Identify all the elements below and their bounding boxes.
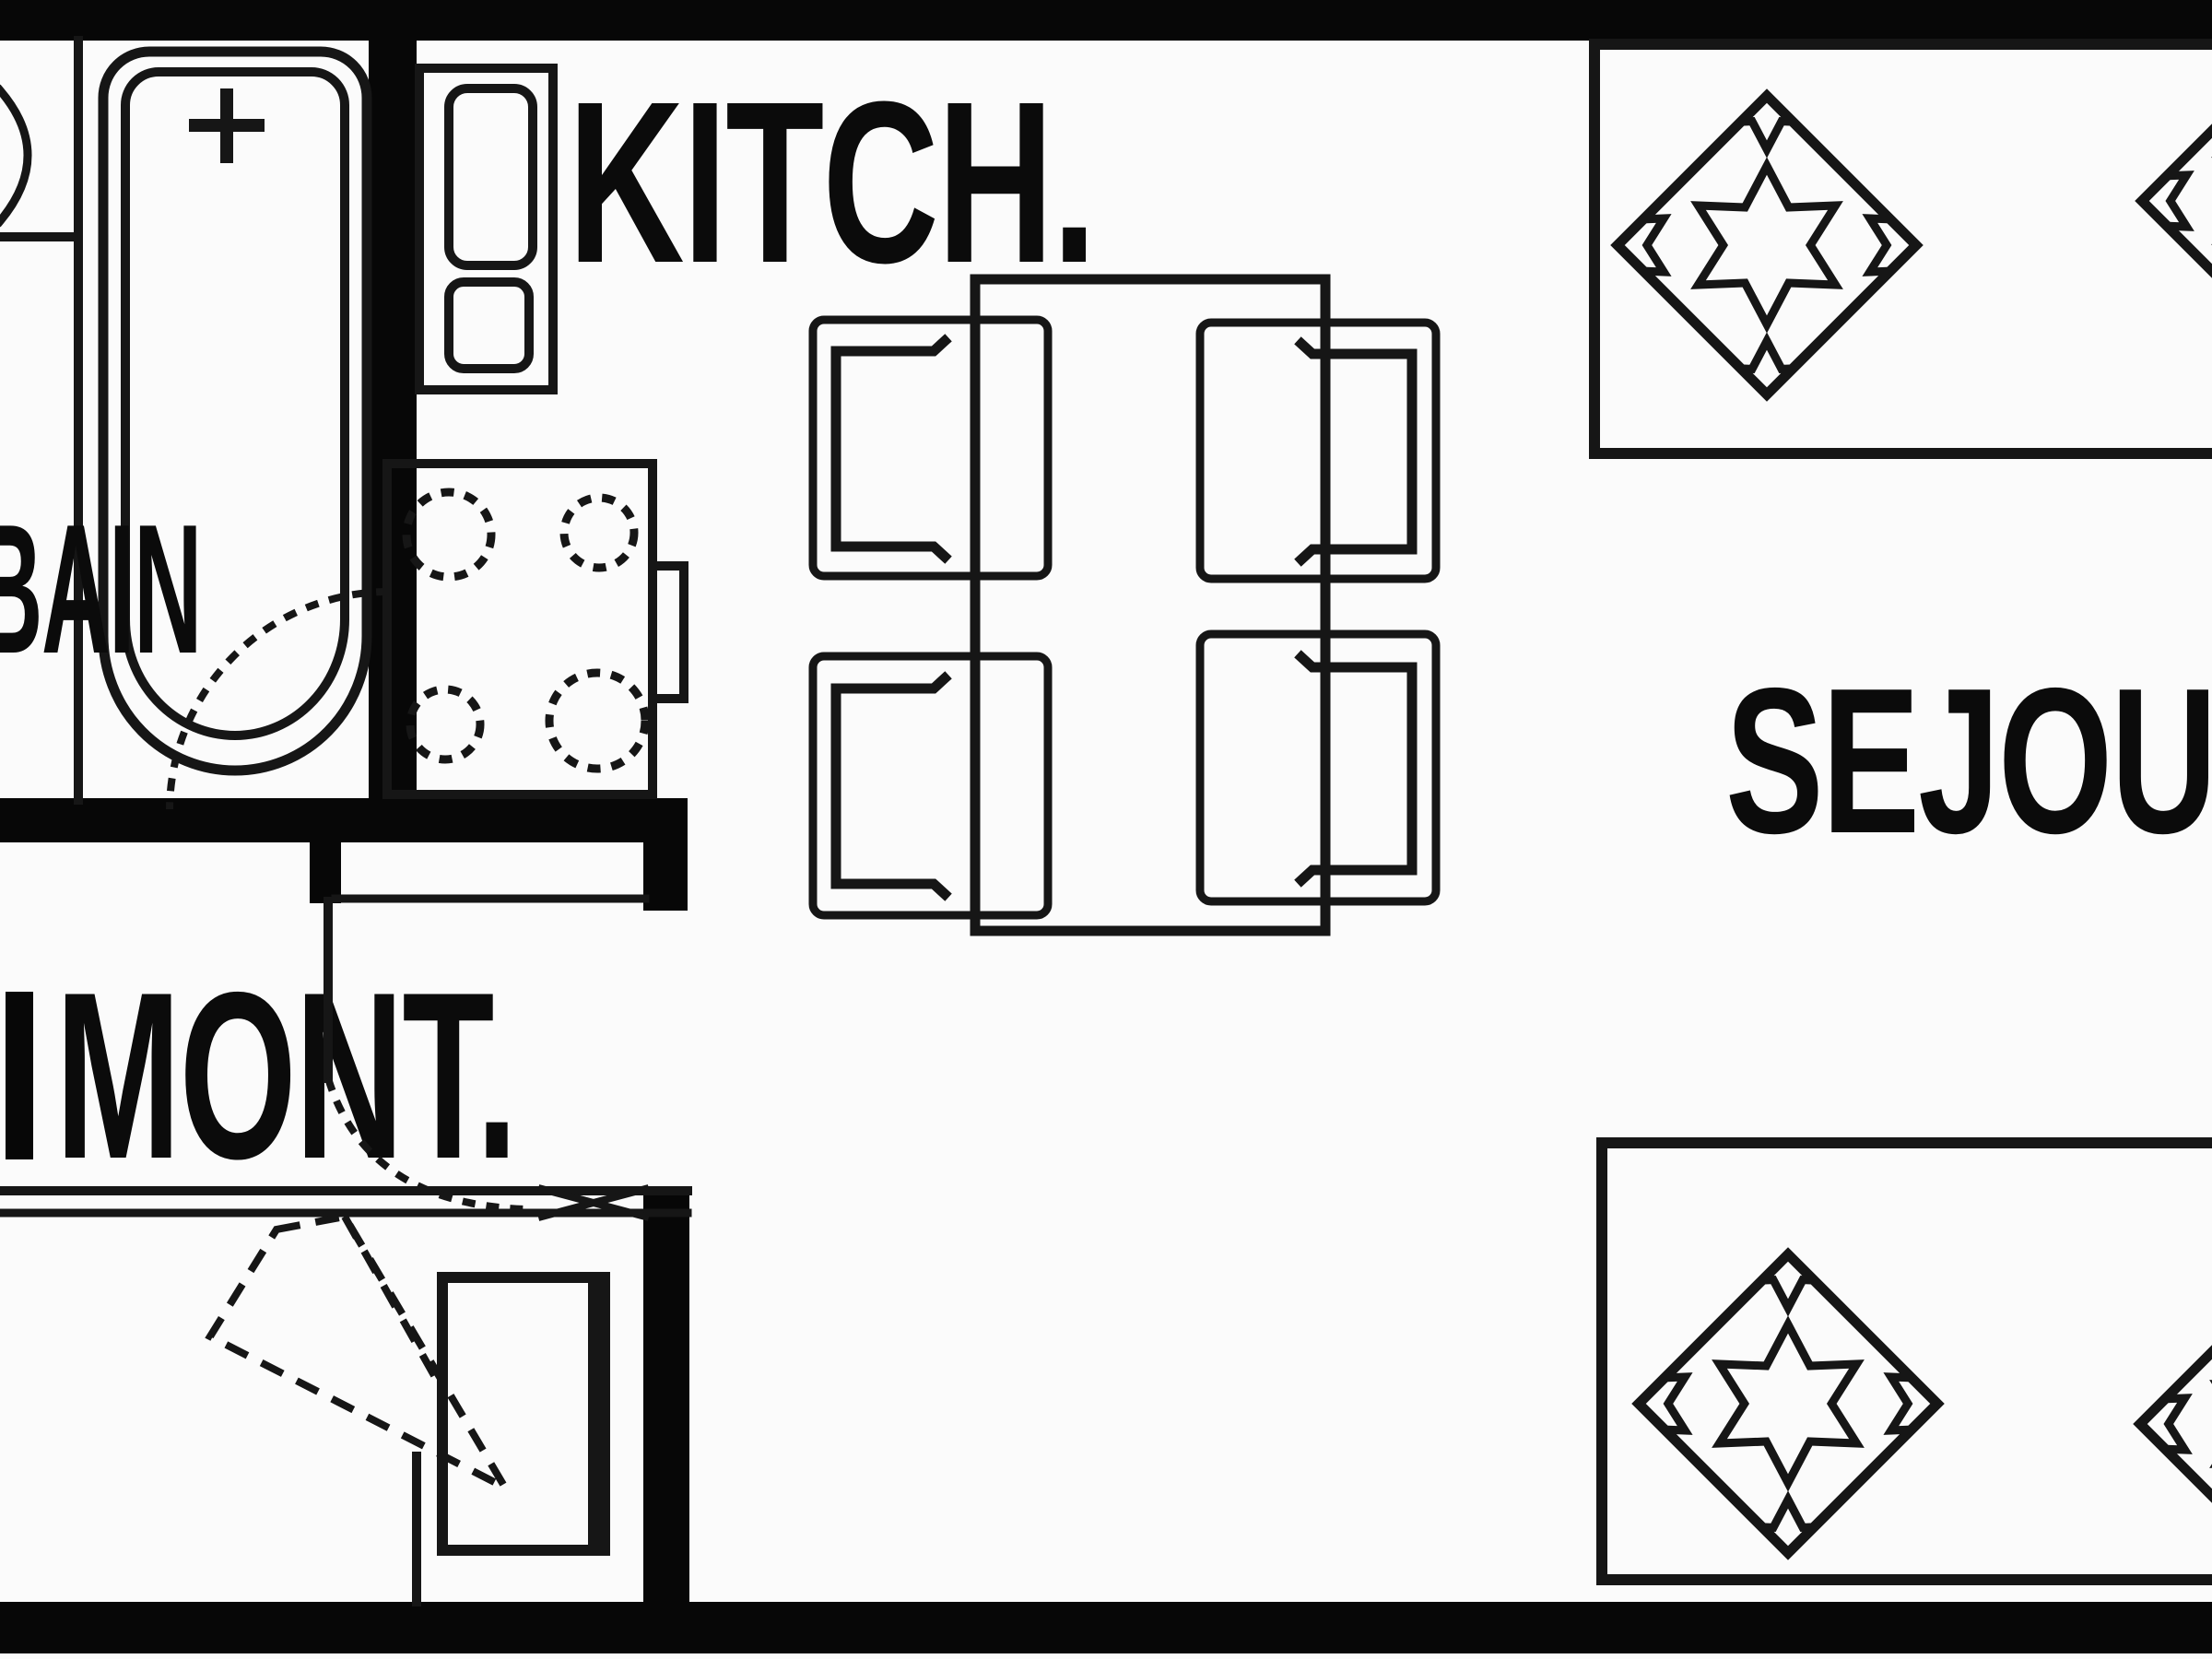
wall-top	[0, 0, 2212, 41]
stove-burner	[549, 673, 645, 769]
wall-stub-door-hinge	[310, 842, 341, 903]
cutoff-letter-fragment	[6, 992, 33, 1159]
wall-stub-door-right	[643, 842, 688, 911]
chair-seat	[1301, 657, 1412, 880]
dining-table	[975, 279, 1325, 931]
wall-stairwell-right	[643, 1191, 689, 1602]
label-bathroom: BAIN	[0, 487, 201, 692]
chair-seat	[836, 341, 945, 557]
dining-set	[813, 279, 1436, 931]
stair-landing-box	[442, 1277, 605, 1550]
stove-handle	[653, 566, 684, 699]
chair-seat	[836, 678, 945, 894]
sofa-cushion-diamond	[2098, 4, 2212, 398]
floor-plan-page: BAIN KITCH. MONT.	[0, 0, 2212, 1659]
stove	[387, 464, 653, 794]
stair-hall: MONT.	[0, 901, 688, 1602]
sofa-bottom	[1602, 1143, 2212, 1580]
sofa-top	[1594, 44, 2212, 453]
chair-top-left	[813, 320, 1048, 576]
bathroom: BAIN	[0, 52, 389, 809]
cushion-star	[1720, 1324, 1857, 1483]
wc-fixture-partial	[0, 90, 28, 221]
chair-seat	[1301, 344, 1412, 559]
living-room: SEJOUR	[1571, 4, 2212, 1621]
cushion-star	[1699, 166, 1836, 324]
floor-plan-drawing: BAIN KITCH. MONT.	[0, 0, 2212, 1659]
stove-burner	[406, 492, 491, 577]
chair-bottom-left	[813, 656, 1048, 915]
sofa-cushion-diamond	[1593, 1201, 1983, 1606]
stove-burner	[410, 689, 480, 759]
stove-burner	[564, 498, 634, 568]
sofa-cushion-diamond	[2096, 1227, 2212, 1621]
label-stairs: MONT.	[55, 942, 516, 1208]
kitchen: KITCH.	[387, 53, 1095, 794]
wall-bathroom-right	[369, 41, 417, 811]
label-living-room: SEJOUR	[1725, 644, 2212, 877]
faucet-cross-icon	[195, 95, 258, 157]
wall-bottom	[0, 1602, 2212, 1653]
sink-basin-small	[449, 282, 529, 369]
chair-bottom-right	[1200, 634, 1436, 901]
chair-top-right	[1200, 323, 1436, 579]
label-kitchen: KITCH.	[568, 53, 1095, 311]
sink-basin-large	[449, 88, 533, 265]
wall-under-kitchen	[0, 798, 688, 842]
stair-direction-arrow	[210, 1217, 505, 1488]
sofa-cushion-diamond	[1571, 42, 1962, 448]
